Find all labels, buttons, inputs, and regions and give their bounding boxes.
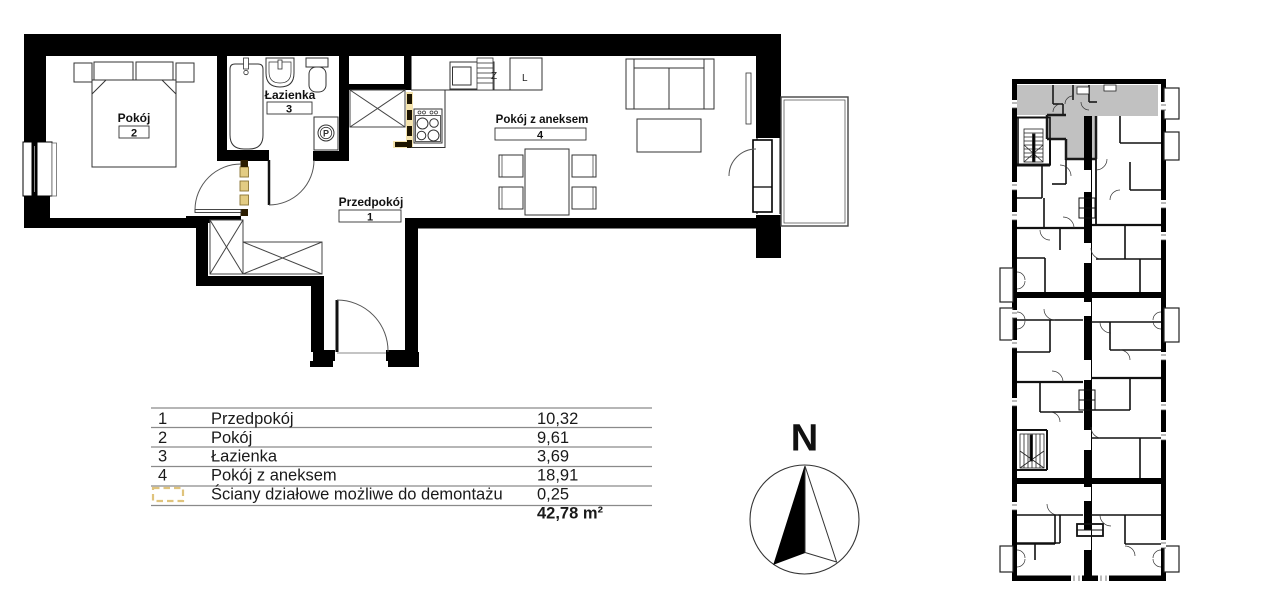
svg-text:Pokój: Pokój [211, 429, 252, 447]
svg-text:L: L [522, 73, 528, 84]
svg-text:Przedpokój: Przedpokój [211, 410, 294, 428]
svg-text:1: 1 [367, 212, 373, 224]
svg-text:Przedpokój: Przedpokój [339, 195, 404, 209]
svg-text:3: 3 [286, 104, 292, 116]
svg-text:4: 4 [537, 130, 544, 142]
svg-text:Łazienka: Łazienka [265, 88, 316, 102]
svg-text:Pokój z aneksem: Pokój z aneksem [496, 114, 589, 126]
svg-text:Ściany działowe możliwe do dem: Ściany działowe możliwe do demontażu [211, 485, 503, 504]
svg-text:Łazienka: Łazienka [211, 448, 278, 466]
svg-text:Z: Z [491, 71, 497, 82]
svg-text:3,69: 3,69 [537, 448, 569, 466]
svg-text:1: 1 [158, 410, 167, 428]
svg-text:N: N [791, 418, 818, 460]
svg-text:0,25: 0,25 [537, 486, 569, 504]
svg-text:2: 2 [158, 429, 167, 447]
svg-text:9,61: 9,61 [537, 429, 569, 447]
svg-text:Pokój: Pokój [118, 111, 151, 125]
svg-text:42,78 m²: 42,78 m² [537, 505, 604, 523]
svg-text:10,32: 10,32 [537, 410, 578, 428]
svg-text:2: 2 [131, 128, 137, 140]
svg-text:4: 4 [158, 467, 167, 485]
svg-text:P: P [323, 129, 329, 139]
svg-text:18,91: 18,91 [537, 467, 578, 485]
svg-text:Pokój z aneksem: Pokój z aneksem [211, 467, 337, 485]
svg-text:3: 3 [158, 448, 167, 466]
